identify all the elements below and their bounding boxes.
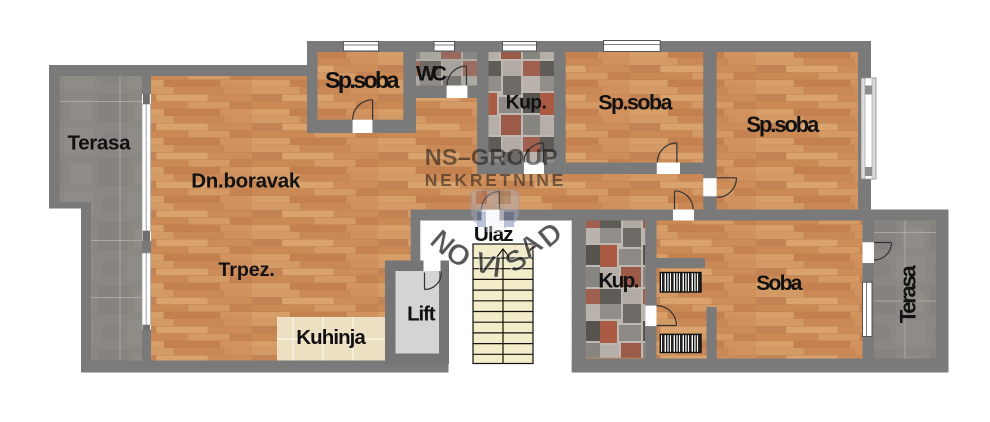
svg-text:NEKRETNINE: NEKRETNINE [425,170,564,190]
svg-text:Terasa: Terasa [895,265,920,324]
svg-text:Lift: Lift [407,302,436,325]
svg-text:Trpez.: Trpez. [218,259,275,281]
svg-text:Kuhinja: Kuhinja [296,326,366,349]
svg-text:NS–GROUP: NS–GROUP [425,144,558,170]
svg-text:WC: WC [416,62,447,86]
svg-text:Kup.: Kup. [598,270,639,293]
svg-text:Sp.soba: Sp.soba [325,67,401,93]
svg-text:Kup.: Kup. [506,92,547,113]
svg-text:Dn.boravak: Dn.boravak [191,170,301,193]
svg-text:Soba: Soba [756,272,802,295]
svg-text:Terasa: Terasa [68,131,132,154]
svg-text:Sp.soba: Sp.soba [598,91,673,115]
svg-text:Sp.soba: Sp.soba [746,112,820,137]
